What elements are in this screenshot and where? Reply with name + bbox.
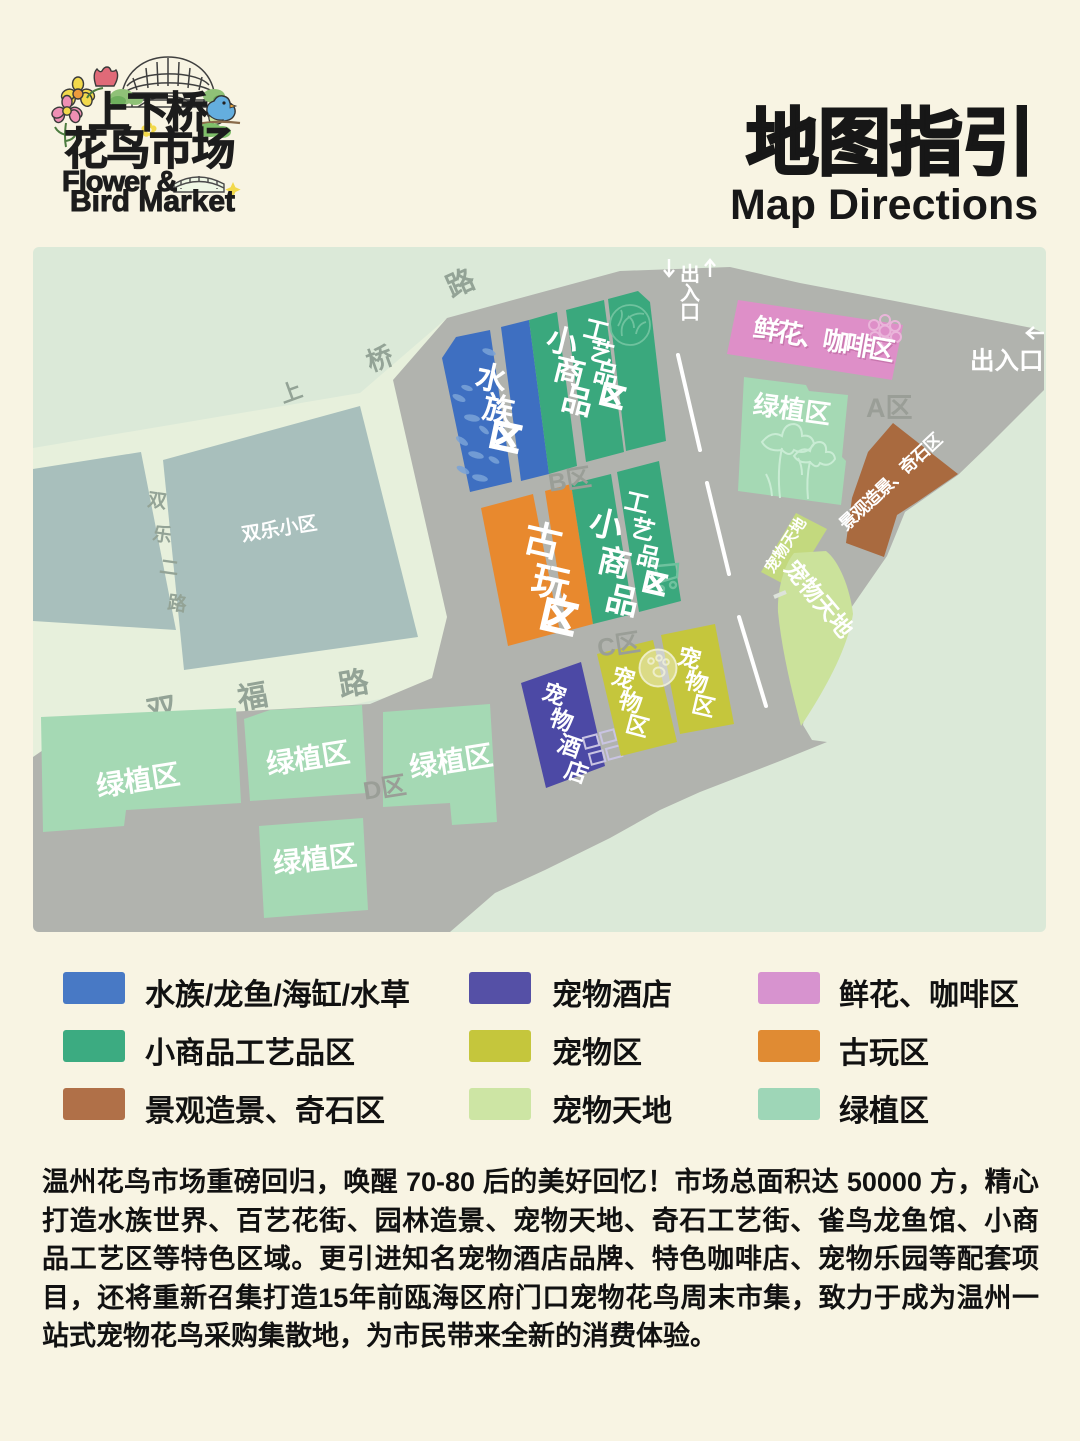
- svg-text:乐: 乐: [151, 523, 173, 547]
- svg-text:口: 口: [680, 302, 700, 324]
- svg-text:出入口: 出入口: [970, 347, 1044, 375]
- svg-text:双: 双: [146, 490, 168, 513]
- svg-text:二: 二: [158, 557, 180, 580]
- svg-text:A区: A区: [866, 393, 913, 423]
- svg-text:福: 福: [234, 679, 270, 717]
